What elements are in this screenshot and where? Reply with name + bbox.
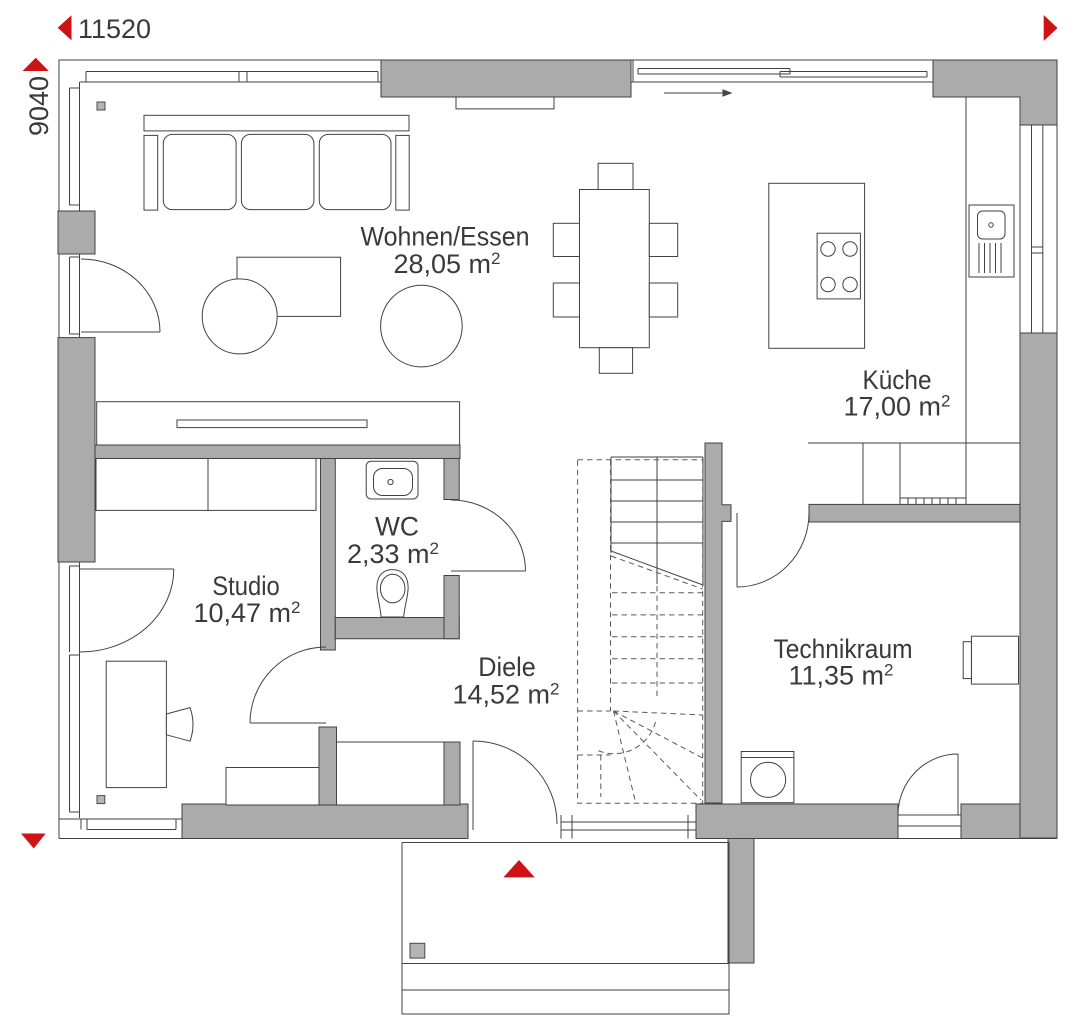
svg-text:WC: WC [375,512,419,542]
svg-text:11520: 11520 [78,14,151,44]
svg-text:Technikraum: Technikraum [774,634,913,664]
svg-text:9040: 9040 [24,76,54,136]
svg-text:Küche: Küche [863,365,932,395]
svg-text:10,47 m2: 10,47 m2 [193,598,300,628]
svg-text:Wohnen/Essen: Wohnen/Essen [361,222,530,252]
svg-text:Diele: Diele [478,652,536,682]
svg-text:Studio: Studio [212,571,280,601]
svg-text:14,52 m2: 14,52 m2 [452,680,559,710]
svg-text:11,35 m2: 11,35 m2 [788,661,893,691]
svg-text:2,33 m2: 2,33 m2 [347,539,439,569]
svg-text:28,05 m2: 28,05 m2 [393,249,500,279]
svg-text:17,00 m2: 17,00 m2 [843,392,950,422]
